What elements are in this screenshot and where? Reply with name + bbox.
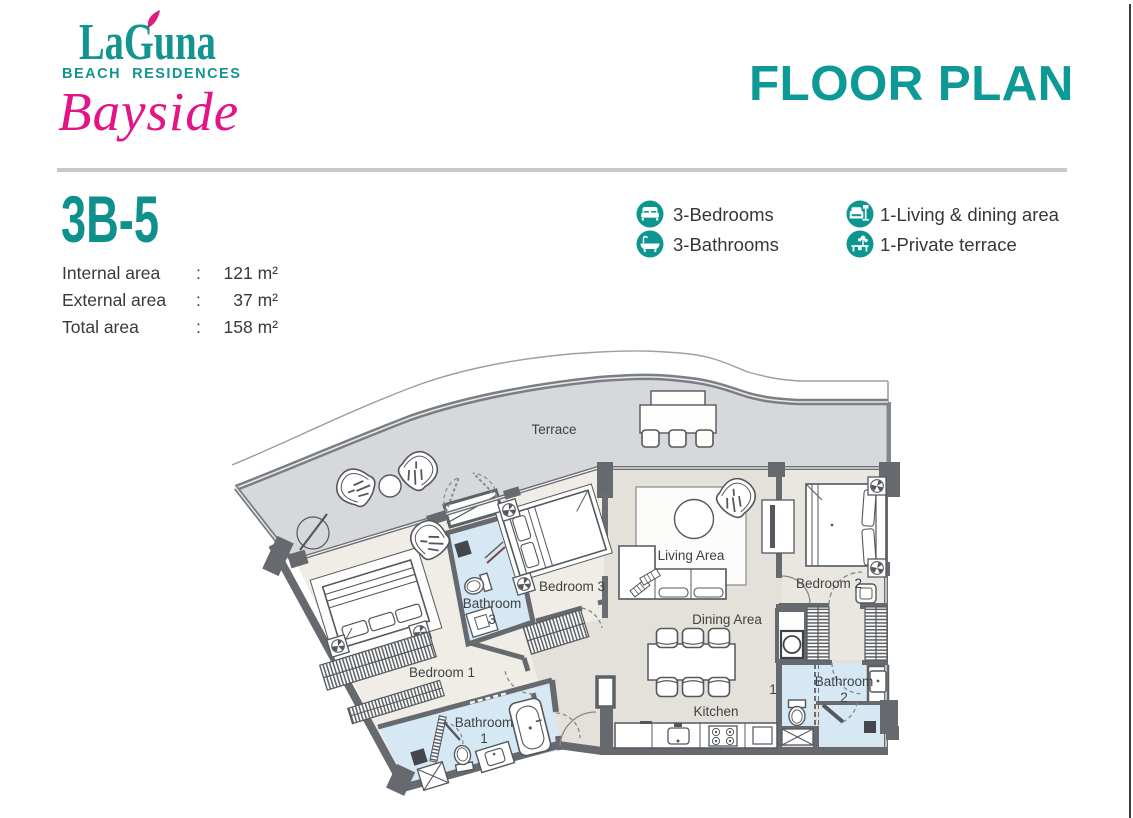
svg-text:Bathroom: Bathroom	[463, 596, 522, 611]
svg-text:Dining Area: Dining Area	[692, 612, 762, 627]
svg-text:Bathroom: Bathroom	[455, 715, 514, 730]
svg-text:Bedroom 2: Bedroom 2	[796, 576, 862, 591]
svg-text:Bathroom: Bathroom	[815, 674, 874, 689]
svg-text:2: 2	[840, 690, 848, 705]
svg-text:Living Area: Living Area	[658, 548, 725, 563]
svg-text:1: 1	[480, 731, 488, 746]
svg-text:3: 3	[488, 612, 496, 627]
svg-text:Bedroom 3: Bedroom 3	[539, 579, 605, 594]
svg-text:Bedroom 1: Bedroom 1	[409, 665, 475, 680]
svg-text:1: 1	[769, 682, 777, 697]
svg-text:Terrace: Terrace	[531, 422, 576, 437]
svg-text:Kitchen: Kitchen	[693, 704, 738, 719]
